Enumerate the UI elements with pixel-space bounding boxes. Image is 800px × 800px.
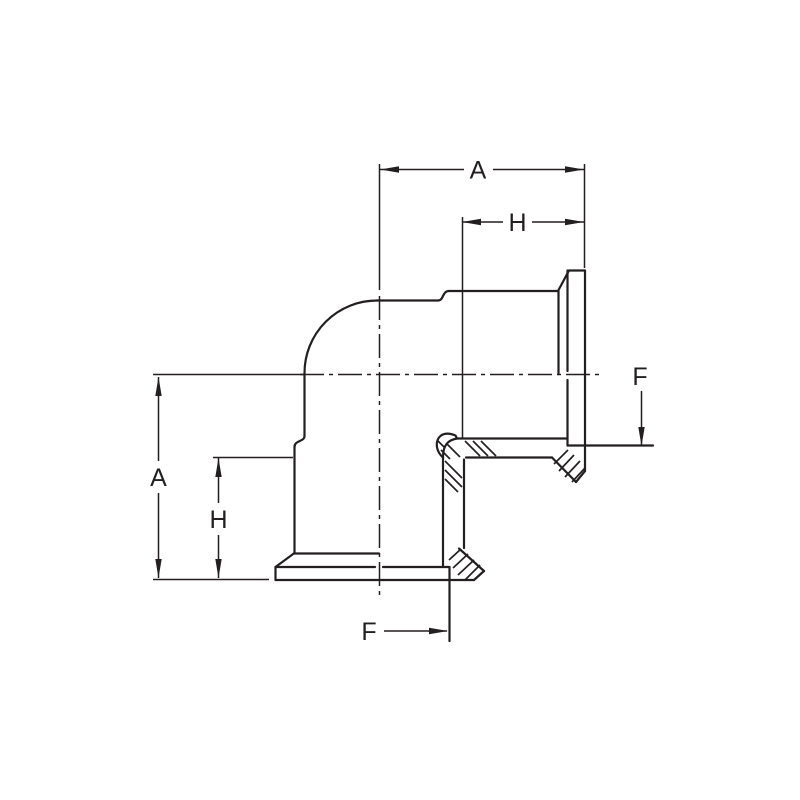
dim-label-a-left: A xyxy=(150,464,167,492)
dim-label-a-top: A xyxy=(470,157,487,185)
dimension-labels: A H A H F F xyxy=(150,157,647,647)
section-hatching xyxy=(438,441,585,580)
dim-label-h-top: H xyxy=(508,209,526,237)
drawing-canvas: A H A H F F xyxy=(0,0,800,800)
centerlines xyxy=(300,296,602,597)
dim-label-h-left: H xyxy=(209,506,227,534)
elbow-technical-drawing: A H A H F F xyxy=(0,0,800,800)
elbow-body-outline xyxy=(276,271,654,642)
dimension-arrowheads xyxy=(155,166,644,634)
dim-label-f-bottom: F xyxy=(361,618,376,646)
corner-weld-bead xyxy=(437,434,457,458)
dim-label-f-right: F xyxy=(632,363,647,391)
outer-bend-arc xyxy=(305,301,378,374)
